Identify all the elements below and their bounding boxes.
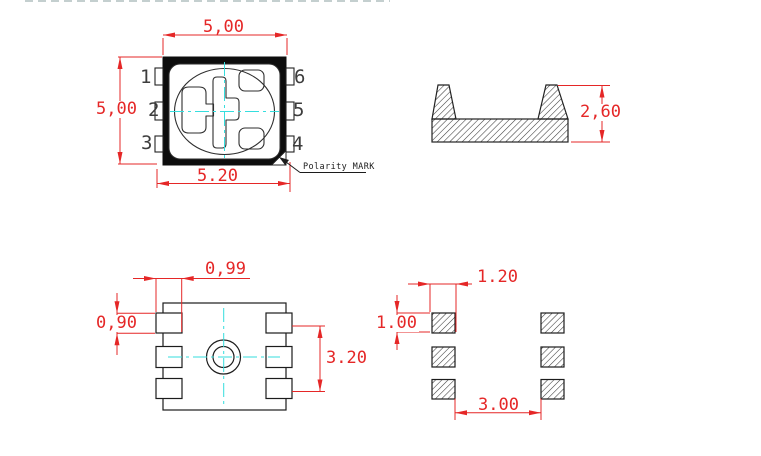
- left-wall-section: [432, 85, 456, 119]
- dim-bottom-pad-width-label: 0,99: [205, 261, 246, 278]
- polarity-mark-label: Polarity MARK: [303, 163, 375, 172]
- dim-left-height-label: 5,00: [94, 101, 139, 118]
- pin-3-label: 3: [141, 134, 152, 153]
- dim-land-gap-label: 3.00: [478, 397, 519, 414]
- pin-5-label: 5: [293, 101, 304, 120]
- bottom-view: [115, 276, 326, 410]
- dim-bottom-pad-height-label: 0,90: [94, 315, 139, 332]
- pin-6-label: 6: [294, 68, 305, 87]
- solder-pads: [432, 313, 564, 399]
- engineering-drawing: 5,00 5,00 5.20 1 2 3 6 5 4 Polarity MARK…: [0, 0, 761, 456]
- dim-side-height-label: 2,60: [578, 104, 623, 121]
- dim-bottom-pitch-label: 3.20: [326, 350, 367, 367]
- dim-land-pad-width-label: 1.20: [477, 269, 518, 286]
- land-pattern-dimensions: [397, 284, 541, 420]
- base-section: [432, 119, 568, 142]
- dim-top-width-label: 5,00: [203, 19, 244, 36]
- pin-4-label: 4: [292, 135, 303, 154]
- right-wall-section: [538, 85, 568, 119]
- pin-1-label: 1: [140, 68, 151, 87]
- dim-bottom-width-label: 5.20: [197, 168, 238, 185]
- dim-land-pad-height-label: 1.00: [374, 315, 419, 332]
- drawing-linework: [0, 0, 761, 456]
- land-pattern-dim-arrows: [395, 282, 542, 416]
- pin-2-label: 2: [148, 101, 159, 120]
